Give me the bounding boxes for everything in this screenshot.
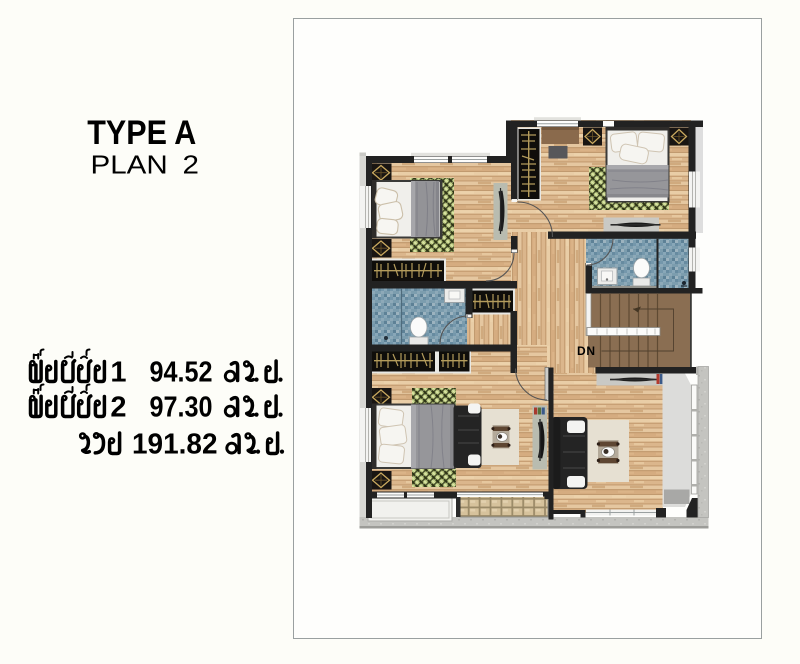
svg-text:DN: DN <box>577 344 595 358</box>
svg-text:TYPE A: TYPE A <box>87 114 196 152</box>
svg-text:2: 2 <box>110 392 126 424</box>
svg-text:94.52: 94.52 <box>150 357 213 389</box>
svg-text:97.30: 97.30 <box>150 392 213 424</box>
svg-text:1: 1 <box>110 357 126 389</box>
svg-text:191.82: 191.82 <box>132 429 218 461</box>
svg-text:PLAN 2: PLAN 2 <box>91 150 200 180</box>
